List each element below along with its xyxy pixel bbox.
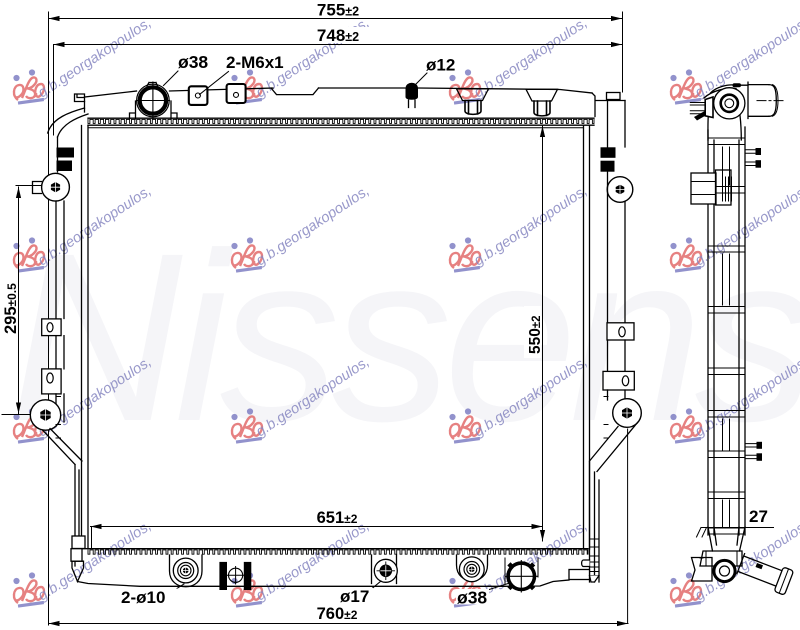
- svg-text:2-M6x1: 2-M6x1: [226, 53, 284, 72]
- svg-text:ø38: ø38: [457, 588, 487, 608]
- svg-text:ø17: ø17: [340, 587, 369, 606]
- svg-text:ø12: ø12: [426, 56, 455, 75]
- svg-text:760±2: 760±2: [317, 605, 358, 623]
- svg-text:2-ø10: 2-ø10: [121, 588, 165, 607]
- svg-text:27: 27: [749, 507, 768, 526]
- svg-text:295±0.5: 295±0.5: [2, 283, 20, 334]
- svg-text:ø38: ø38: [178, 52, 208, 72]
- svg-text:651±2: 651±2: [317, 509, 358, 527]
